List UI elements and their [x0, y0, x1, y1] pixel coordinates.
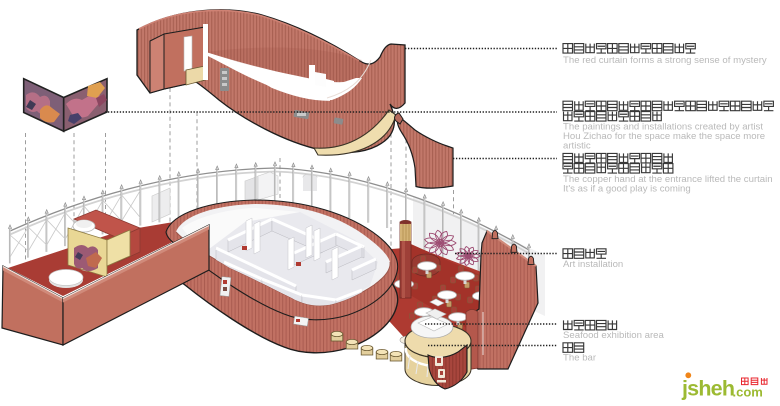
svg-text:Seafood exhibition area: Seafood exhibition area — [563, 330, 664, 341]
svg-text:The bar: The bar — [563, 352, 597, 363]
svg-text:Art installation: Art installation — [563, 259, 623, 270]
svg-text:It's as if a good play is comi: It's as if a good play is coming — [563, 183, 691, 194]
svg-text:.com: .com — [733, 385, 763, 400]
svg-text:The red curtain forms a strong: The red curtain forms a strong sense of … — [563, 55, 767, 66]
svg-text:jsheh: jsheh — [681, 376, 734, 400]
svg-text:artistic: artistic — [563, 141, 591, 152]
svg-text:Hou Zichao for the space make: Hou Zichao for the space make the space … — [563, 131, 765, 142]
